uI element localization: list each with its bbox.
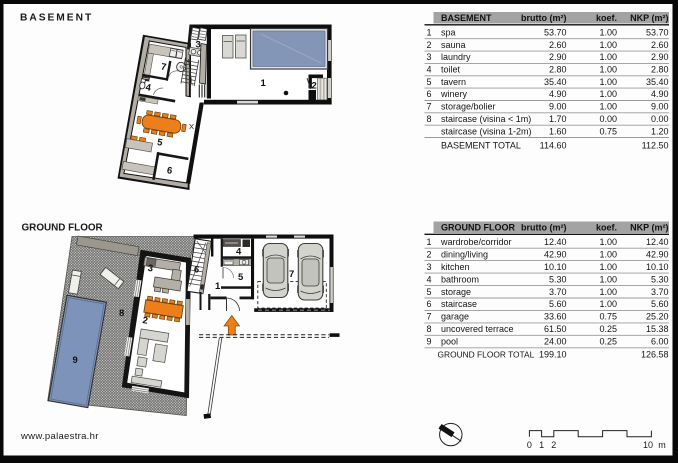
svg-text:5.30: 5.30 xyxy=(651,274,669,284)
svg-text:koef.: koef. xyxy=(596,13,617,23)
svg-text:6.00: 6.00 xyxy=(651,337,669,347)
svg-text:4.90: 4.90 xyxy=(549,89,567,99)
svg-text:1.20: 1.20 xyxy=(651,126,669,136)
svg-text:8: 8 xyxy=(426,324,431,334)
svg-text:0.75: 0.75 xyxy=(599,312,617,322)
svg-text:2.80: 2.80 xyxy=(651,65,669,75)
svg-text:2.90: 2.90 xyxy=(651,52,669,62)
svg-text:9: 9 xyxy=(73,355,78,366)
svg-text:5.30: 5.30 xyxy=(549,274,567,284)
svg-text:12.40: 12.40 xyxy=(646,237,669,247)
svg-text:9: 9 xyxy=(426,337,431,347)
svg-text:1.00: 1.00 xyxy=(599,249,617,259)
svg-text:1.60: 1.60 xyxy=(549,126,567,136)
svg-text:2: 2 xyxy=(551,440,556,450)
svg-text:staircase (visina 1-2m): staircase (visina 1-2m) xyxy=(441,126,532,136)
svg-text:15.38: 15.38 xyxy=(646,324,669,334)
svg-text:42.90: 42.90 xyxy=(544,249,567,259)
svg-text:53.70: 53.70 xyxy=(646,28,669,38)
svg-text:2.60: 2.60 xyxy=(549,40,567,50)
svg-text:brutto (m²): brutto (m²) xyxy=(521,223,566,233)
svg-text:1.00: 1.00 xyxy=(599,102,617,112)
svg-text:5.60: 5.60 xyxy=(549,299,567,309)
svg-text:kitchen: kitchen xyxy=(441,262,470,272)
svg-text:33.60: 33.60 xyxy=(544,312,567,322)
svg-text:7: 7 xyxy=(426,312,431,322)
svg-text:dining/living: dining/living xyxy=(441,249,488,259)
svg-text:GROUND FLOOR: GROUND FLOOR xyxy=(441,223,515,233)
svg-text:6: 6 xyxy=(426,89,431,99)
svg-text:7: 7 xyxy=(289,269,294,280)
svg-text:1.00: 1.00 xyxy=(599,28,617,38)
svg-text:24.00: 24.00 xyxy=(544,337,567,347)
svg-text:7: 7 xyxy=(426,102,431,112)
svg-text:5.60: 5.60 xyxy=(651,299,669,309)
svg-text:9.00: 9.00 xyxy=(651,102,669,112)
svg-text:53.70: 53.70 xyxy=(544,28,567,38)
svg-text:12.40: 12.40 xyxy=(544,237,567,247)
svg-text:BASEMENT: BASEMENT xyxy=(20,13,93,24)
svg-text:spa: spa xyxy=(441,28,456,38)
svg-text:3: 3 xyxy=(426,262,431,272)
svg-text:4: 4 xyxy=(236,247,242,258)
svg-text:1.00: 1.00 xyxy=(599,40,617,50)
svg-text:1.00: 1.00 xyxy=(599,237,617,247)
svg-text:bathroom: bathroom xyxy=(441,274,479,284)
svg-text:0.25: 0.25 xyxy=(599,324,617,334)
svg-text:www.palaestra.hr: www.palaestra.hr xyxy=(20,431,99,442)
svg-text:0.00: 0.00 xyxy=(651,114,669,124)
svg-text:10.10: 10.10 xyxy=(544,262,567,272)
svg-text:1: 1 xyxy=(426,28,431,38)
svg-text:2.60: 2.60 xyxy=(651,40,669,50)
svg-text:8: 8 xyxy=(119,308,124,319)
svg-text:NKP (m²): NKP (m²) xyxy=(630,223,668,233)
svg-text:GROUND FLOOR TOTAL: GROUND FLOOR TOTAL xyxy=(438,350,535,360)
svg-text:10: 10 xyxy=(643,440,653,450)
svg-text:0.00: 0.00 xyxy=(599,114,617,124)
svg-text:1.70: 1.70 xyxy=(549,114,567,124)
svg-text:0.75: 0.75 xyxy=(599,126,617,136)
svg-text:GROUND FLOOR: GROUND FLOOR xyxy=(22,223,103,234)
svg-text:4.90: 4.90 xyxy=(651,89,669,99)
svg-text:0: 0 xyxy=(527,440,532,450)
svg-text:8: 8 xyxy=(426,114,431,124)
svg-text:1.00: 1.00 xyxy=(599,287,617,297)
svg-text:1.00: 1.00 xyxy=(599,52,617,62)
svg-text:1: 1 xyxy=(261,78,267,89)
svg-text:1.00: 1.00 xyxy=(599,299,617,309)
svg-text:1.00: 1.00 xyxy=(599,65,617,75)
svg-text:BASEMENT TOTAL: BASEMENT TOTAL xyxy=(441,140,521,150)
svg-text:10.10: 10.10 xyxy=(646,262,669,272)
svg-text:1.00: 1.00 xyxy=(599,262,617,272)
svg-text:staircase (visina < 1m): staircase (visina < 1m) xyxy=(441,114,531,124)
svg-text:wardrobe/corridor: wardrobe/corridor xyxy=(440,237,512,247)
svg-text:sauna: sauna xyxy=(441,40,466,50)
svg-text:3.70: 3.70 xyxy=(651,287,669,297)
svg-text:1.00: 1.00 xyxy=(599,77,617,87)
svg-text:1: 1 xyxy=(215,281,221,292)
svg-text:pool: pool xyxy=(441,337,458,347)
svg-text:laundry: laundry xyxy=(441,52,471,62)
svg-text:1: 1 xyxy=(426,237,431,247)
svg-text:storage/bolier: storage/bolier xyxy=(441,102,496,112)
svg-text:2.80: 2.80 xyxy=(549,65,567,75)
svg-text:5: 5 xyxy=(426,287,431,297)
svg-text:42.90: 42.90 xyxy=(646,249,669,259)
svg-text:storage: storage xyxy=(441,287,471,297)
svg-text:9.00: 9.00 xyxy=(549,102,567,112)
svg-text:2: 2 xyxy=(312,81,317,92)
svg-text:112.50: 112.50 xyxy=(642,140,669,150)
svg-text:1: 1 xyxy=(539,440,544,450)
svg-text:winery: winery xyxy=(440,89,468,99)
svg-text:2: 2 xyxy=(426,249,431,259)
svg-text:0.25: 0.25 xyxy=(599,337,617,347)
svg-text:brutto (m²): brutto (m²) xyxy=(521,13,566,23)
svg-text:BASEMENT: BASEMENT xyxy=(441,13,492,23)
svg-text:garage: garage xyxy=(441,312,469,322)
svg-text:3: 3 xyxy=(426,52,431,62)
svg-text:4: 4 xyxy=(426,274,431,284)
svg-text:NKP (m²): NKP (m²) xyxy=(630,13,668,23)
svg-text:tavern: tavern xyxy=(441,77,466,87)
svg-text:35.40: 35.40 xyxy=(646,77,669,87)
svg-text:6: 6 xyxy=(426,299,431,309)
svg-text:staircase: staircase xyxy=(441,299,477,309)
svg-text:126.58: 126.58 xyxy=(641,350,669,360)
svg-text:toilet: toilet xyxy=(441,65,461,75)
svg-text:114.60: 114.60 xyxy=(540,140,567,150)
svg-text:5: 5 xyxy=(238,272,244,283)
svg-text:25.20: 25.20 xyxy=(646,312,669,322)
svg-text:35.40: 35.40 xyxy=(544,77,567,87)
svg-text:3.70: 3.70 xyxy=(549,287,567,297)
svg-text:2: 2 xyxy=(426,40,431,50)
svg-text:61.50: 61.50 xyxy=(544,324,567,334)
svg-text:koef.: koef. xyxy=(596,223,617,233)
svg-text:1.00: 1.00 xyxy=(599,89,617,99)
svg-text:4: 4 xyxy=(426,65,431,75)
svg-text:uncovered terrace: uncovered terrace xyxy=(441,324,514,334)
svg-text:m: m xyxy=(658,440,666,450)
svg-text:5: 5 xyxy=(426,77,431,87)
svg-text:2.90: 2.90 xyxy=(549,52,567,62)
svg-text:199.10: 199.10 xyxy=(539,350,567,360)
svg-text:1.00: 1.00 xyxy=(599,274,617,284)
